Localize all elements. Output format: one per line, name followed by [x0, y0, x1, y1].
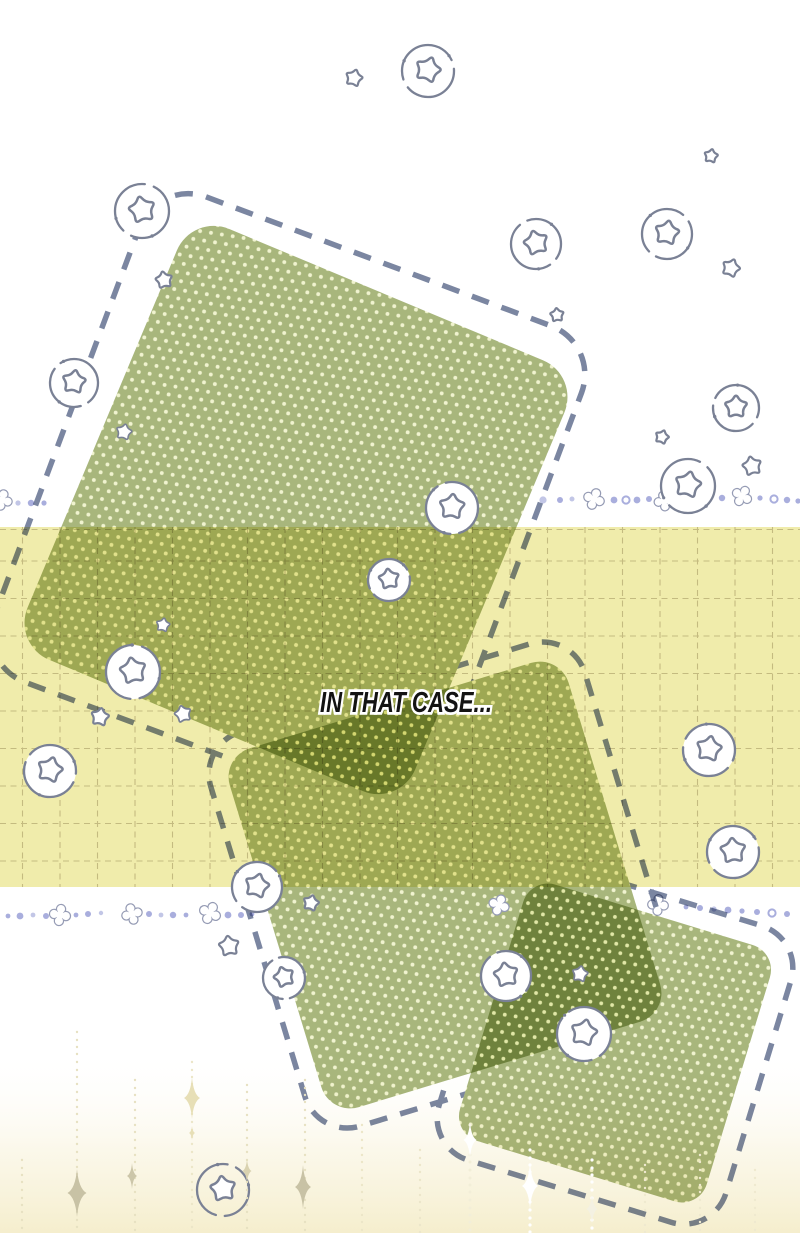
svg-text:IN THAT CASE...: IN THAT CASE...	[320, 687, 492, 719]
